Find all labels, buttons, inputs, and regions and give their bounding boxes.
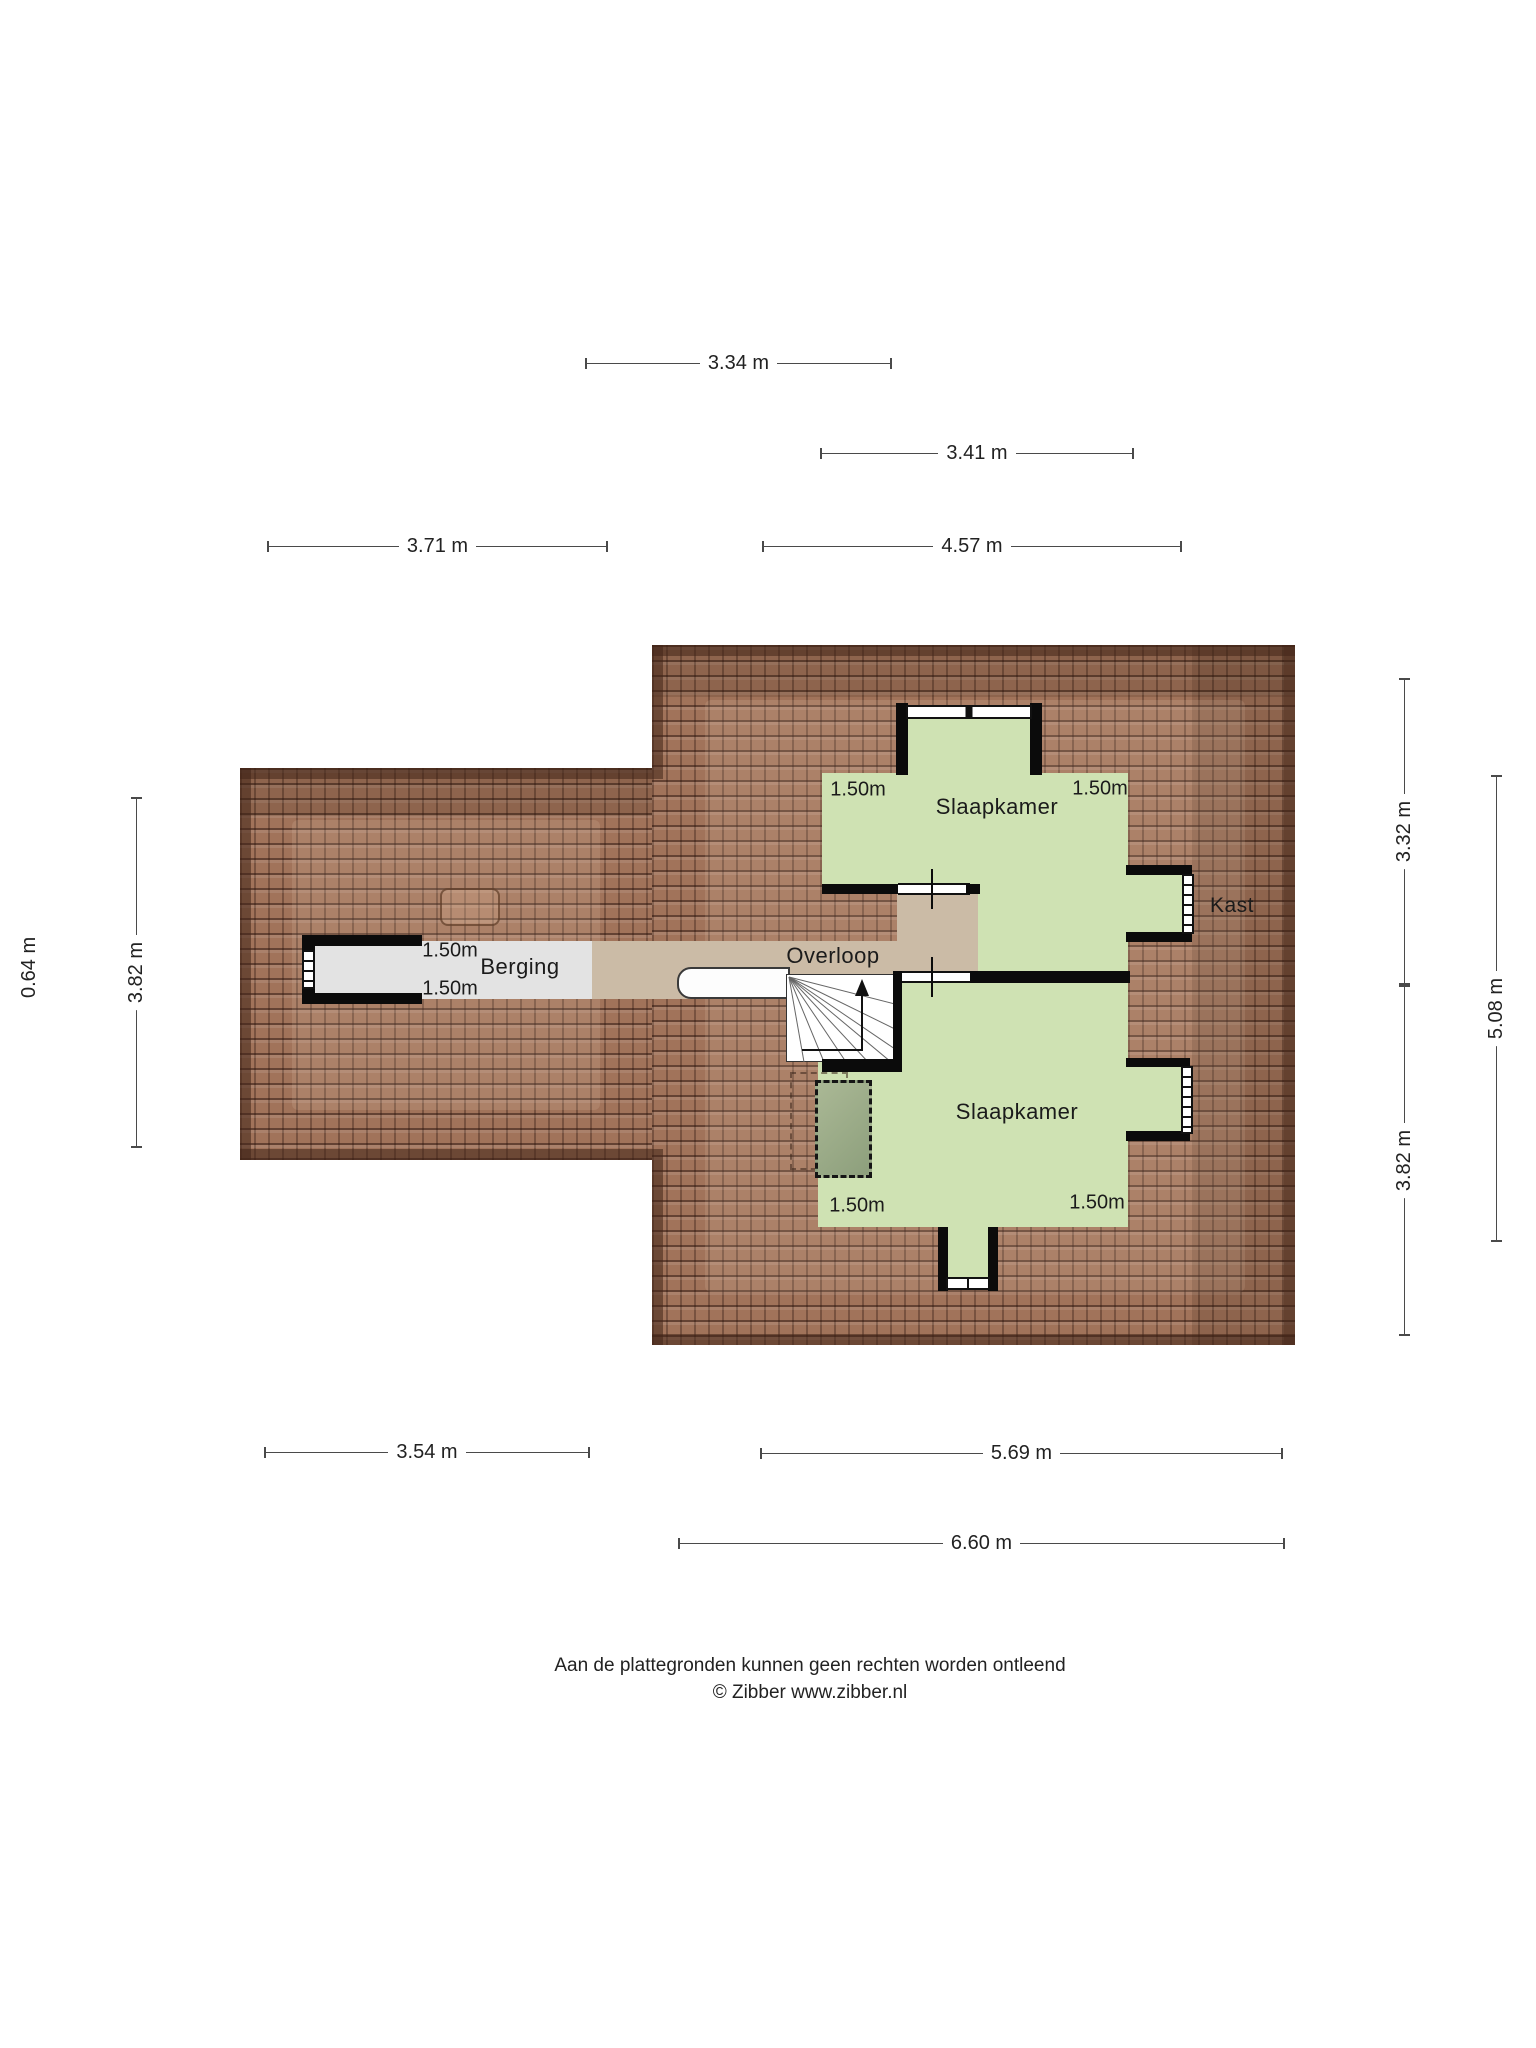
stairs-wall-bottom: [822, 1059, 902, 1072]
label-bedroom-top: Slaapkamer: [936, 794, 1058, 820]
dimension-left-outer: 0.64 m: [18, 897, 41, 1037]
dimension-bottom-right: 5.69 m: [760, 1444, 1283, 1462]
storage-wall-top: [304, 935, 422, 946]
eave-bottom-main: [652, 1334, 1295, 1345]
bedroomtop-landing-wall2: [966, 884, 980, 894]
midwall-black: [966, 971, 1130, 983]
clearance-bedroom-top-left: 1.50m: [830, 779, 886, 802]
eave-bottom-leftwing: [240, 1149, 663, 1160]
label-bedroom-bottom: Slaapkamer: [956, 1099, 1078, 1125]
bump-window: [1181, 1066, 1193, 1134]
clearance-storage-top: 1.50m: [422, 940, 478, 963]
dimension-bottom-outer: 6.60 m: [678, 1534, 1285, 1552]
staircase: [786, 974, 895, 1062]
footer-copyright: © Zibber www.zibber.nl: [85, 1679, 1535, 1706]
window-tick-mid: [931, 957, 933, 997]
dimension-left-inner: 3.82 m: [126, 797, 146, 1148]
window-tick-top: [931, 869, 933, 909]
clearance-bedroom-top-right: 1.50m: [1072, 778, 1128, 801]
closet-corridor: [1128, 873, 1190, 935]
clearance-bedroom-bottom-right: 1.50m: [1069, 1192, 1125, 1215]
dimension-top-row1: 3.34 m: [585, 354, 892, 372]
clearance-storage-bottom: 1.50m: [422, 978, 478, 1001]
dimension-right-outer: 5.08 m: [1486, 775, 1506, 1242]
dimension-bottom-left: 3.54 m: [264, 1443, 590, 1461]
bedroom-bottom-bump: [1128, 1066, 1186, 1133]
skylight: [815, 1080, 872, 1178]
bedroomtop-landing-window: [898, 883, 970, 895]
eave-top-leftwing: [240, 768, 652, 779]
stair-railing: [677, 967, 790, 999]
midwall-window: [898, 971, 970, 983]
room-bedroom-top-dormer: [906, 710, 1032, 775]
storage-wall-bottom: [304, 993, 422, 1004]
eave-left-leftwing: [240, 768, 251, 1160]
dimension-right-top: 3.32 m: [1394, 678, 1414, 985]
dimension-right-bottom: 3.82 m: [1394, 985, 1414, 1336]
label-closet: Kast: [1210, 894, 1254, 918]
eave-left-lower: [652, 1160, 663, 1345]
eave-right: [1284, 645, 1295, 1345]
dimension-top-left: 3.71 m: [267, 537, 608, 555]
stairs-wall-right: [893, 973, 902, 1065]
room-bedroom-top-lower: [978, 888, 1128, 973]
clearance-bedroom-bottom-left: 1.50m: [829, 1195, 885, 1218]
eave-top-main: [652, 645, 1295, 656]
protrusion-window: [946, 1277, 990, 1290]
footer-disclaimer: Aan de plattegronden kunnen geen rechten…: [85, 1652, 1535, 1679]
label-storage: Berging: [480, 954, 559, 980]
closet-window: [1182, 874, 1194, 934]
bedroomtop-landing-wall: [822, 884, 902, 894]
dormer-window: [906, 705, 1032, 719]
footer: Aan de plattegronden kunnen geen rechten…: [85, 1652, 1535, 1706]
room-landing-column: [897, 885, 980, 983]
label-landing: Overloop: [786, 943, 879, 969]
floorplan-page: Slaapkamer Kast Berging Overloop Slaapka…: [0, 0, 1536, 2048]
dimension-top-row2: 3.41 m: [820, 444, 1134, 462]
dimension-top-right: 4.57 m: [762, 537, 1182, 555]
chimney-outline: [440, 888, 500, 926]
storage-window: [302, 950, 315, 989]
eave-left-upper-main: [652, 645, 663, 779]
